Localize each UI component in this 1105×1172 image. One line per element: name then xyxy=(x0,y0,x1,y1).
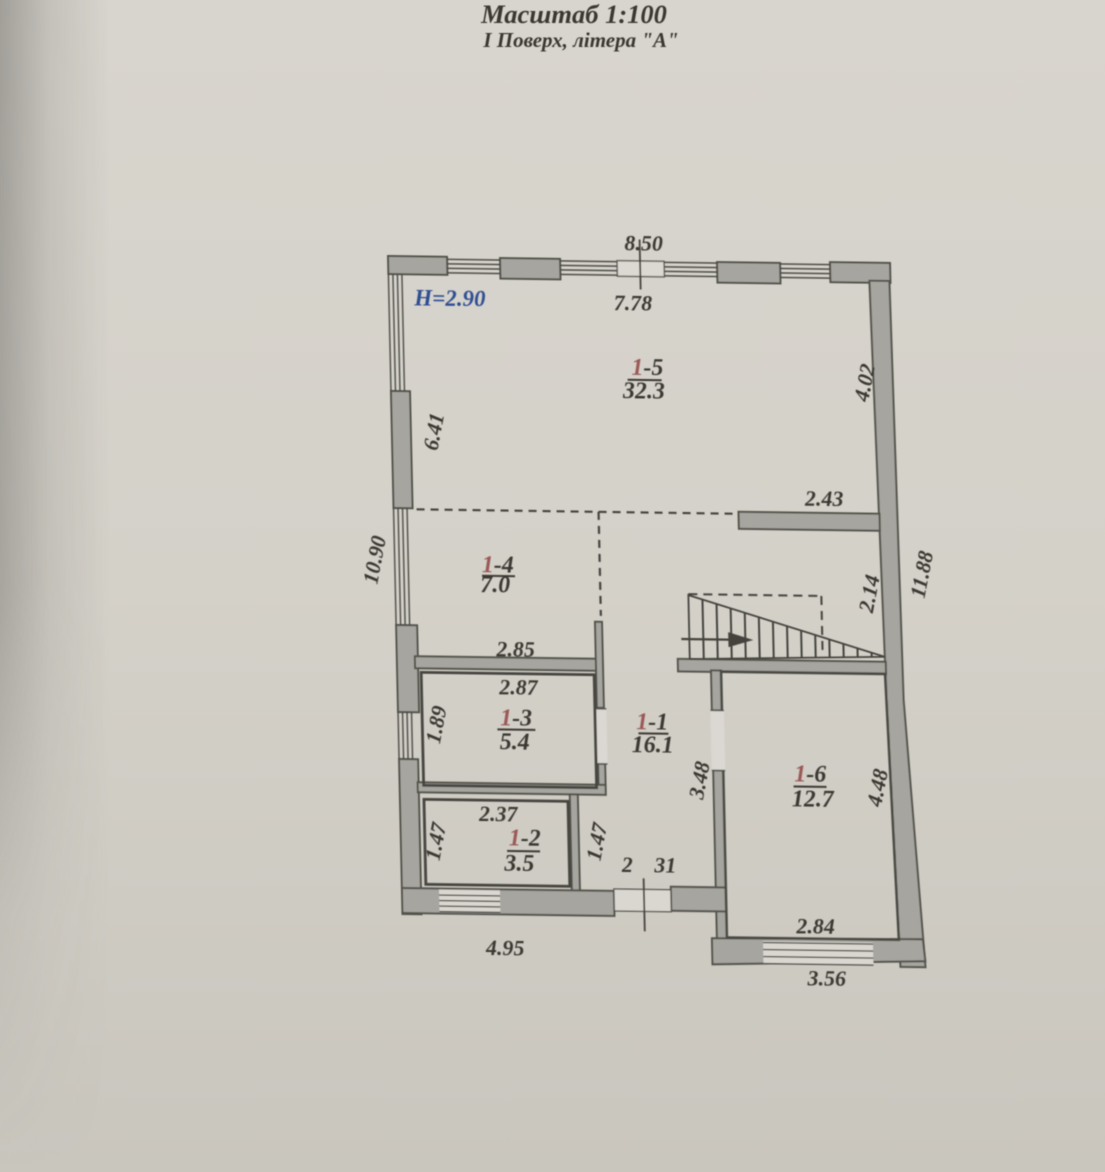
svg-text:3.5: 3.5 xyxy=(503,851,535,877)
svg-text:16.1: 16.1 xyxy=(631,732,674,759)
svg-text:2.37: 2.37 xyxy=(478,801,519,827)
svg-text:4.95: 4.95 xyxy=(485,935,525,961)
svg-text:7.0: 7.0 xyxy=(480,572,511,598)
svg-text:3.56: 3.56 xyxy=(806,966,846,992)
svg-text:1-3: 1-3 xyxy=(500,705,533,731)
svg-text:1-5: 1-5 xyxy=(631,355,664,381)
svg-text:Масштаб 1:100: Масштаб 1:100 xyxy=(480,0,667,29)
svg-text:2.84: 2.84 xyxy=(795,913,835,939)
svg-text:Н=2.90: Н=2.90 xyxy=(413,285,486,311)
svg-text:5.4: 5.4 xyxy=(499,729,530,755)
svg-text:1-6: 1-6 xyxy=(794,761,827,787)
svg-text:8.50: 8.50 xyxy=(624,230,663,256)
svg-text:1-2: 1-2 xyxy=(508,826,541,852)
svg-text:31: 31 xyxy=(653,853,677,878)
svg-text:2.87: 2.87 xyxy=(498,674,539,700)
svg-text:32.3: 32.3 xyxy=(622,378,666,405)
svg-text:2: 2 xyxy=(621,852,634,877)
svg-text:2.43: 2.43 xyxy=(804,486,844,512)
svg-text:І Поверх, літера "А": І Поверх, літера "А" xyxy=(482,28,678,52)
svg-text:7.78: 7.78 xyxy=(613,290,652,316)
svg-text:12.7: 12.7 xyxy=(792,786,836,813)
svg-text:2.85: 2.85 xyxy=(495,636,535,662)
